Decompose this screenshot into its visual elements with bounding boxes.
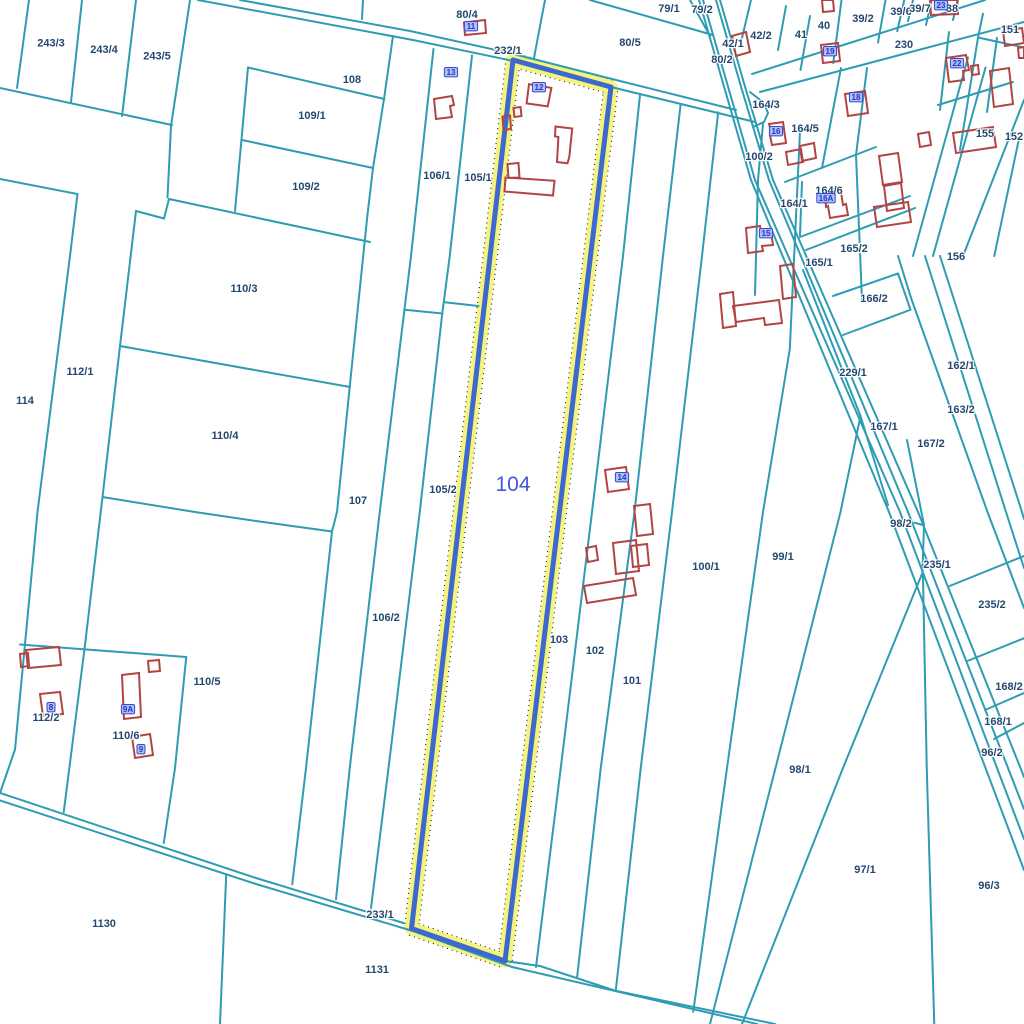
svg-text:110/5: 110/5 xyxy=(194,676,221,688)
svg-text:42/1: 42/1 xyxy=(722,38,743,50)
svg-text:155: 155 xyxy=(976,128,994,140)
svg-text:235/2: 235/2 xyxy=(978,599,1006,611)
svg-text:80/4: 80/4 xyxy=(456,9,478,21)
svg-text:98/1: 98/1 xyxy=(789,764,810,776)
svg-text:39/7: 39/7 xyxy=(909,3,930,15)
svg-text:9: 9 xyxy=(139,745,144,754)
svg-text:110/6: 110/6 xyxy=(113,730,140,742)
svg-text:80/2: 80/2 xyxy=(711,54,732,66)
svg-text:99/1: 99/1 xyxy=(772,551,793,563)
svg-text:40: 40 xyxy=(818,20,830,32)
svg-text:8: 8 xyxy=(49,703,54,712)
svg-text:243/3: 243/3 xyxy=(37,38,65,50)
svg-text:164/3: 164/3 xyxy=(752,99,780,111)
svg-text:15: 15 xyxy=(762,229,771,238)
svg-text:106/2: 106/2 xyxy=(372,612,400,624)
svg-text:165/2: 165/2 xyxy=(840,243,868,255)
svg-text:18: 18 xyxy=(852,93,861,102)
svg-text:235/1: 235/1 xyxy=(923,559,951,571)
svg-text:151: 151 xyxy=(1001,24,1019,36)
svg-text:110/3: 110/3 xyxy=(231,283,258,295)
svg-text:105/2: 105/2 xyxy=(429,484,457,496)
svg-text:167/2: 167/2 xyxy=(917,438,945,450)
svg-text:152: 152 xyxy=(1005,131,1023,143)
svg-text:22: 22 xyxy=(953,59,962,68)
svg-text:97/1: 97/1 xyxy=(854,864,875,876)
svg-text:164/5: 164/5 xyxy=(791,123,819,135)
svg-text:100/2: 100/2 xyxy=(745,151,773,163)
svg-text:229/1: 229/1 xyxy=(839,367,867,379)
svg-text:233/1: 233/1 xyxy=(366,909,394,921)
svg-text:101: 101 xyxy=(623,675,641,687)
svg-text:96/2: 96/2 xyxy=(981,747,1002,759)
svg-text:168/2: 168/2 xyxy=(995,681,1023,693)
svg-text:80/5: 80/5 xyxy=(619,37,640,49)
svg-text:41: 41 xyxy=(795,29,807,41)
svg-text:1130: 1130 xyxy=(92,918,116,930)
svg-text:109/2: 109/2 xyxy=(292,181,320,193)
svg-text:100/1: 100/1 xyxy=(692,561,720,573)
svg-text:98/2: 98/2 xyxy=(890,518,911,530)
svg-text:103: 103 xyxy=(550,634,568,646)
svg-text:168/1: 168/1 xyxy=(984,716,1012,728)
svg-text:232/1: 232/1 xyxy=(494,45,522,57)
svg-text:243/4: 243/4 xyxy=(90,44,118,56)
svg-text:107: 107 xyxy=(349,495,367,507)
svg-text:42/2: 42/2 xyxy=(750,30,771,42)
svg-text:114: 114 xyxy=(16,395,35,407)
svg-text:11: 11 xyxy=(467,22,476,31)
svg-text:106/1: 106/1 xyxy=(423,170,451,182)
svg-text:243/5: 243/5 xyxy=(143,51,171,63)
svg-text:104: 104 xyxy=(495,473,530,496)
svg-text:79/1: 79/1 xyxy=(658,3,679,15)
svg-text:19: 19 xyxy=(826,47,835,56)
svg-text:108: 108 xyxy=(343,74,361,86)
svg-text:79/2: 79/2 xyxy=(691,4,712,16)
svg-text:12: 12 xyxy=(535,83,544,92)
svg-text:96/3: 96/3 xyxy=(978,880,999,892)
svg-text:39/2: 39/2 xyxy=(852,13,873,25)
svg-text:162/1: 162/1 xyxy=(947,360,975,372)
svg-text:14: 14 xyxy=(618,473,627,482)
svg-text:105/1: 105/1 xyxy=(464,172,492,184)
svg-text:102: 102 xyxy=(586,645,604,657)
svg-text:110/4: 110/4 xyxy=(212,430,240,442)
svg-text:112/2: 112/2 xyxy=(33,712,60,724)
svg-text:163/2: 163/2 xyxy=(947,404,975,416)
svg-text:16: 16 xyxy=(772,127,781,136)
svg-text:230: 230 xyxy=(895,39,913,51)
svg-text:1131: 1131 xyxy=(365,964,389,976)
svg-text:109/1: 109/1 xyxy=(298,110,326,122)
svg-text:13: 13 xyxy=(447,68,456,77)
svg-text:167/1: 167/1 xyxy=(870,421,898,433)
svg-text:16A: 16A xyxy=(819,194,834,203)
svg-text:164/1: 164/1 xyxy=(780,198,808,210)
svg-text:166/2: 166/2 xyxy=(860,293,888,305)
svg-text:9A: 9A xyxy=(123,705,133,714)
svg-text:165/1: 165/1 xyxy=(805,257,833,269)
svg-text:156: 156 xyxy=(947,251,965,263)
svg-text:23: 23 xyxy=(937,1,946,10)
svg-text:112/1: 112/1 xyxy=(67,366,94,378)
